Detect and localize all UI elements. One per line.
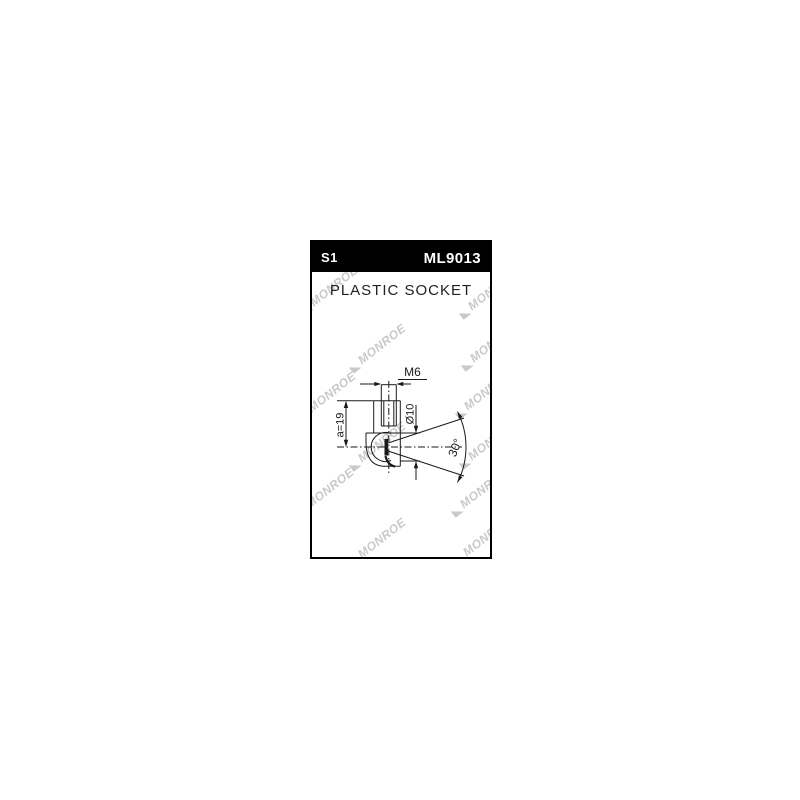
category-code: S1 <box>321 250 338 265</box>
dimension-lines <box>337 380 427 481</box>
diameter-dimension-label: Ø10 <box>404 404 416 425</box>
part-number: ML9013 <box>424 250 481 267</box>
length-dimension-label: a=19 <box>334 413 346 438</box>
angle-dimension-label: 30° <box>445 436 465 458</box>
centerlines <box>337 381 462 475</box>
part-card-header: S1 ML9013 <box>312 242 490 272</box>
thread-dimension-label: M6 <box>404 365 421 379</box>
page: S1 ML9013 PLASTIC SOCKET MONROEMONROEMON… <box>0 0 800 800</box>
technical-drawing: M6 Ø10 a=19 30° <box>312 242 492 559</box>
dimension-arrows <box>344 382 463 483</box>
part-card: S1 ML9013 PLASTIC SOCKET MONROEMONROEMON… <box>310 240 492 559</box>
